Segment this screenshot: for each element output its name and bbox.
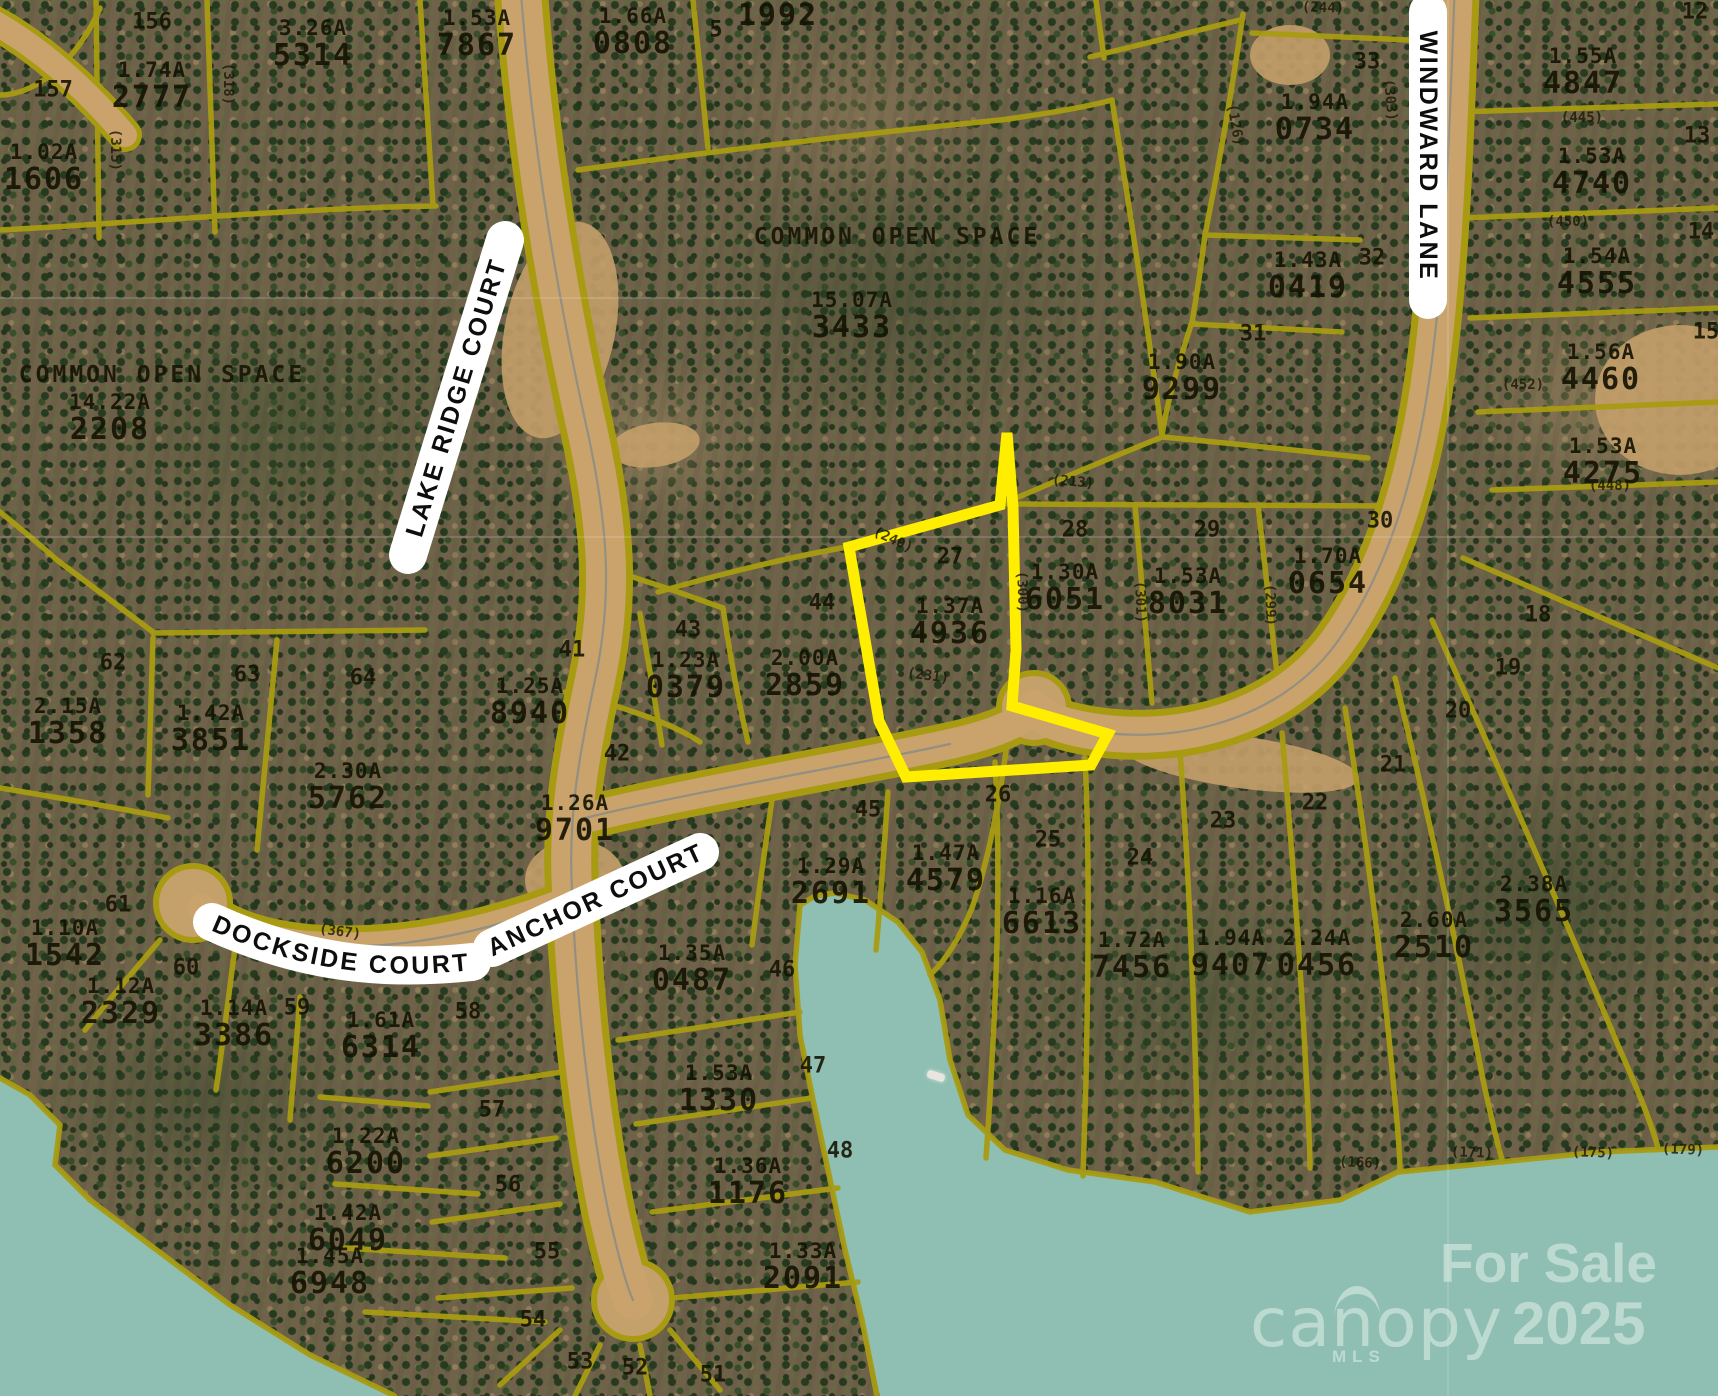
lot-number: 21 — [1380, 753, 1407, 778]
lot-number: 33 — [1354, 50, 1381, 75]
lot-number: 12 — [1682, 0, 1709, 25]
lot-number: 25 — [1035, 828, 1062, 853]
lot-number: 14 — [1688, 220, 1715, 245]
lot-number: 30 — [1367, 509, 1394, 534]
parcel-label: 1.94A9407 — [1191, 928, 1271, 981]
dimension-label: (171) — [1451, 1144, 1494, 1161]
lot-number: 19 — [1495, 656, 1522, 681]
lot-number: 55 — [534, 1240, 561, 1265]
lot-number: 27 — [937, 545, 964, 570]
dimension-label: (300) — [1013, 571, 1030, 614]
parcel-label: 1.94A0734 — [1275, 92, 1355, 145]
parcel-label: 2.24A0456 — [1277, 928, 1357, 981]
dimension-label: (367) — [318, 921, 362, 943]
lot-number: 18 — [1525, 603, 1552, 628]
parcel-label: 1.47A4579 — [906, 843, 986, 896]
lot-number: 48 — [827, 1139, 854, 1164]
watermark-mls: MLS — [1332, 1348, 1386, 1365]
lot-number: 22 — [1302, 791, 1329, 816]
parcel-label: 2.60A2510 — [1394, 910, 1474, 963]
lot-number: 43 — [675, 618, 702, 643]
parcel-label: 1.90A9299 — [1142, 352, 1222, 405]
parcel-label: 1.25A8940 — [490, 676, 570, 729]
parcel-text-layer: 1.74A27773.26A53141.02A16061.53A78671.66… — [0, 0, 1718, 1396]
lot-number: 60 — [173, 956, 200, 981]
dimension-label: (315) — [107, 129, 123, 171]
parcel-label: 1.61A6314 — [341, 1010, 421, 1063]
watermark-year: 2025 — [1512, 1294, 1645, 1354]
parcel-label: 1992 — [738, 0, 818, 31]
parcel-label: 2.00A2859 — [765, 648, 845, 701]
watermark-for-sale: For Sale — [1440, 1236, 1657, 1291]
dimension-label: (231) — [906, 665, 950, 687]
parcel-label: 1.33A2091 — [763, 1241, 843, 1294]
parcel-label: 2.30A5762 — [308, 761, 388, 814]
lot-number: 53 — [567, 1350, 594, 1375]
plat-map-screenshot: LAKE RIDGE COURT WINDWARD LANE DOCKSIDE … — [0, 0, 1718, 1396]
dimension-label: (299) — [1261, 584, 1278, 627]
lot-number: 24 — [1127, 846, 1154, 871]
parcel-label: 1.23A0379 — [646, 650, 726, 703]
dimension-label: (240) — [871, 524, 916, 556]
lot-number: 23 — [1210, 809, 1237, 834]
lot-number: 58 — [455, 1000, 482, 1025]
parcel-label: 1.53A4740 — [1552, 146, 1632, 199]
parcel-label: 3.26A5314 — [273, 18, 353, 71]
parcel-label: 1.74A2777 — [112, 60, 192, 113]
lot-number: 41 — [559, 638, 586, 663]
dimension-label: (179) — [1662, 1141, 1705, 1158]
lot-number: 52 — [622, 1356, 649, 1381]
lot-number: 20 — [1445, 699, 1472, 724]
lot-number: 5 — [709, 18, 722, 43]
dimension-label: (301) — [1131, 581, 1148, 624]
lot-number: 61 — [105, 893, 132, 918]
lot-number: 42 — [604, 742, 631, 767]
lot-number: 47 — [800, 1054, 827, 1079]
dimension-label: (303) — [1380, 78, 1400, 121]
dimension-label: (244) — [1302, 0, 1345, 17]
dimension-label: (445) — [1561, 110, 1603, 126]
dimension-label: (175) — [1572, 1144, 1615, 1161]
parcel-label: 1.70A0654 — [1288, 546, 1368, 599]
common-open-space-label: COMMON OPEN SPACE — [754, 224, 1040, 250]
parcel-label: 1.26A9701 — [535, 793, 615, 846]
lot-number: 62 — [100, 651, 127, 676]
lot-number: 64 — [350, 666, 377, 691]
parcel-label: 2.15A1358 — [28, 696, 108, 749]
parcel-label: 2.38A3565 — [1494, 874, 1574, 927]
parcel-label: 1.54A4555 — [1557, 246, 1637, 299]
lot-number: 46 — [769, 958, 796, 983]
parcel-label: 1.53A8031 — [1148, 566, 1228, 619]
dimension-label: (166) — [1339, 1154, 1382, 1172]
lot-number: 15 — [1693, 320, 1718, 345]
parcel-label: 1.22A6200 — [326, 1126, 406, 1179]
lot-number: 59 — [284, 996, 311, 1021]
parcel-label: 1.12A2329 — [81, 976, 161, 1029]
parcel-label: 1.14A3386 — [194, 998, 274, 1051]
parcel-label: 1.35A0487 — [652, 943, 732, 996]
lot-number: 54 — [520, 1308, 547, 1333]
lot-number: 13 — [1684, 124, 1711, 149]
lot-number: 51 — [700, 1363, 727, 1388]
parcel-label: 1.56A4460 — [1561, 342, 1641, 395]
dimension-label: (213) — [1051, 472, 1094, 492]
parcel-label: 1.30A6051 — [1025, 562, 1105, 615]
lot-number: 31 — [1240, 322, 1267, 347]
parcel-label: 1.16A6613 — [1002, 886, 1082, 939]
lot-number: 26 — [985, 783, 1012, 808]
lot-number: 56 — [495, 1173, 522, 1198]
parcel-label: 1.55A4847 — [1543, 46, 1623, 99]
lot-number: 29 — [1194, 518, 1221, 543]
lot-number: 28 — [1062, 518, 1089, 543]
lot-number: 44 — [809, 591, 836, 616]
lot-number: 57 — [479, 1098, 506, 1123]
parcel-label: 1.43A0419 — [1268, 250, 1348, 303]
lot-number: 156 — [132, 10, 172, 35]
parcel-label: 1.29A2691 — [791, 856, 871, 909]
dimension-label: (126) — [1223, 103, 1246, 147]
parcel-label: 1.72A7456 — [1092, 930, 1172, 983]
lot-number: 63 — [234, 663, 261, 688]
parcel-label: 1.10A1542 — [25, 918, 105, 971]
lot-number: 32 — [1359, 246, 1386, 271]
parcel-label: 1.37A4936 — [910, 596, 990, 649]
parcel-label: 1.42A3851 — [171, 703, 251, 756]
lot-number: 45 — [855, 798, 882, 823]
lot-number: 157 — [33, 78, 73, 103]
parcel-label: 1.53A7867 — [437, 8, 517, 61]
dimension-label: (450) — [1547, 214, 1589, 230]
parcel-label: 1.53A1330 — [679, 1063, 759, 1116]
parcel-label: 14.22A2208 — [69, 392, 151, 445]
parcel-label: 1.36A1176 — [708, 1156, 788, 1209]
dimension-label: (452) — [1502, 377, 1544, 393]
parcel-label: 1.02A1606 — [4, 142, 84, 195]
parcel-label: 15.07A3433 — [811, 290, 893, 343]
common-open-space-label: COMMON OPEN SPACE — [19, 362, 305, 388]
dimension-label: (318) — [220, 63, 236, 105]
parcel-label: 1.66A0808 — [593, 6, 673, 59]
parcel-label: 1.45A6948 — [290, 1246, 370, 1299]
dimension-label: (448) — [1589, 478, 1631, 494]
